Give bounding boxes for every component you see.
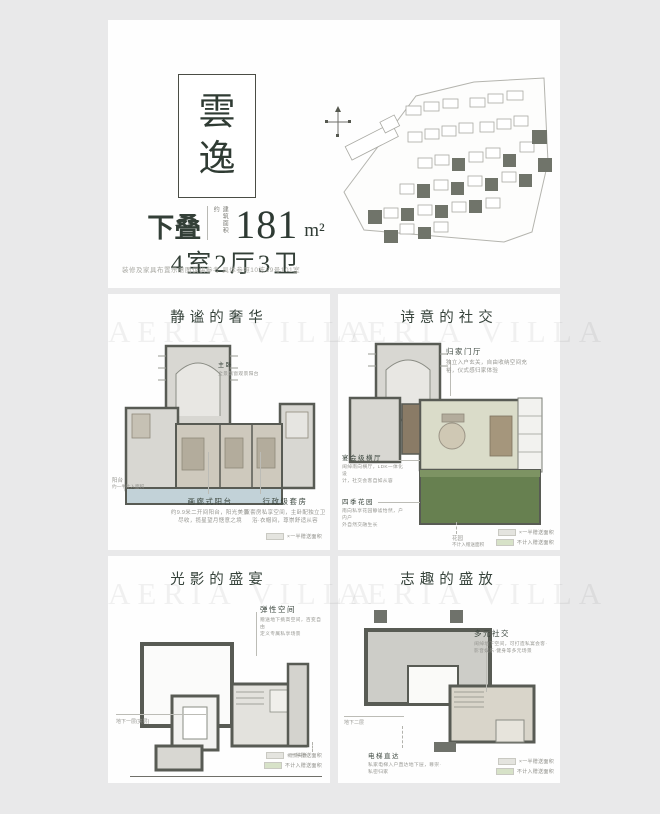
panel2-title: 诗意的社交 — [338, 306, 560, 327]
leader-line — [260, 452, 261, 494]
panel-upper-floor: AERIA VILLA 静谧的奢华 主卧 全景飘窗观景阳台 阳台 约一半计入面积 — [108, 294, 330, 550]
area-row: 下叠 建筑面积约 181 m² — [136, 206, 336, 242]
floor-level-label: 地下一层(夹层) — [116, 718, 149, 725]
legend-row: 不计入赠送面积 — [496, 539, 554, 546]
legend-panel2: ×一半赠送面积 不计入赠送面积 — [496, 529, 554, 546]
footer-rule — [130, 776, 322, 777]
leader-line — [344, 716, 404, 717]
area-value: 181 — [235, 208, 298, 242]
leader-line — [208, 452, 209, 494]
annotation-four-season-garden: 四季花园 南向私享花园静谧怡然，户内户 外自然交融生长 — [342, 496, 404, 530]
annotation-executive-suite: 行政级套房 双套房私享空间，主卧配独立卫 浴·衣帽间，尊崇舒适从容 — [244, 496, 326, 526]
legend-swatch-gray — [498, 758, 516, 765]
annotation-elevator: 电梯直达 私家电梯入户直达地下层，尊崇· 私密归家 — [368, 750, 458, 776]
panel4-title: 志趣的盛放 — [338, 568, 560, 589]
legend-panel4: ×一半赠送面积 不计入赠送面积 — [496, 758, 554, 775]
panel3-title: 光影的盛宴 — [108, 568, 330, 589]
legend-row: 不计入赠送面积 — [496, 768, 554, 775]
leader-line — [312, 742, 314, 752]
area-label: 建筑面积约 — [207, 206, 229, 240]
leader-line — [256, 612, 257, 656]
panel-basement-mezzanine: AERIA VILLA 光影的盛宴 弹性空间 赠送地下挑高空间，百变自由 定义专… — [108, 556, 330, 783]
annotation-master-bedroom: 主卧 全景飘窗观景阳台 — [218, 360, 259, 378]
annotation-multi-social: 多元社交 阔绰地下空间，可打造私宴会客· 影音娱乐·健身等多元场景 — [474, 628, 554, 655]
legend-row: 不计入赠送面积 — [264, 762, 322, 769]
legend-swatch-green — [496, 768, 514, 775]
annotation-banquet-hall: 宴会级横厅 阔绰南向横厅，LDK一体化设 计，社交会客自如从容 — [342, 452, 404, 486]
annotation-flex-space: 弹性空间 赠送地下挑高空间，百变自由 定义专属私享场景 — [260, 604, 326, 639]
compass-icon — [325, 106, 351, 137]
dimension-line — [116, 714, 206, 715]
header-card: 雲 逸 下叠 建筑面积约 181 m² 4室2厅3卫 装修及家具布置示意图仅供参… — [108, 20, 560, 288]
legend-row: ×一半赠送面积 — [266, 752, 322, 759]
legend-swatch-green — [496, 539, 514, 546]
annotation-balcony-side: 阳台 约一半计入面积 — [112, 476, 156, 490]
legend-swatch-gray — [266, 533, 284, 540]
site-plan-map — [322, 72, 558, 272]
brand-char-1: 雲 — [199, 94, 236, 131]
legend-panel3: ×一半赠送面积 不计入赠送面积 — [264, 752, 322, 769]
legend-panel1: ×一半赠送面积 — [266, 533, 322, 540]
floor-level-label: 地下二层 — [344, 719, 364, 726]
legend-row: ×一半赠送面积 — [266, 533, 322, 540]
panel1-title: 静谧的奢华 — [108, 306, 330, 327]
product-type: 下叠 — [147, 215, 201, 242]
leader-line — [402, 726, 404, 748]
legend-swatch-gray — [498, 529, 516, 536]
legend-swatch-green — [264, 762, 282, 769]
leader-line — [456, 522, 458, 534]
brand-logo-box: 雲 逸 — [178, 74, 256, 198]
room-layout: 4室2厅3卫 — [136, 244, 336, 280]
legend-swatch-gray — [266, 752, 284, 759]
legend-row: ×一半赠送面积 — [498, 758, 554, 765]
panel-ground-floor: AERIA VILLA 诗意的社交 归家门厅 独立入户玄关，自由收纳空间充 裕，… — [338, 294, 560, 550]
panel-basement: AERIA VILLA 志趣的盛放 多元社交 阔绰地下空间，可打造私宴会客· 影… — [338, 556, 560, 783]
annotation-entry-hall: 归家门厅 独立入户玄关，自由收纳空间充 裕，仪式感归家体验 — [446, 346, 546, 376]
annotation-gallery-balcony: 画廊式阳台 约9.9米二开间阳台，阳光美景 尽收，揽星望月惬意之境 — [170, 496, 250, 526]
brochure-page: 雲 逸 下叠 建筑面积约 181 m² 4室2厅3卫 装修及家具布置示意图仅供参… — [0, 0, 660, 814]
brand-char-2: 逸 — [199, 141, 236, 178]
disclaimer-text: 装修及家具布置示意图仅供参考 具体参照10栋29号101室 — [122, 264, 300, 274]
legend-row: ×一半赠送面积 — [498, 529, 554, 536]
